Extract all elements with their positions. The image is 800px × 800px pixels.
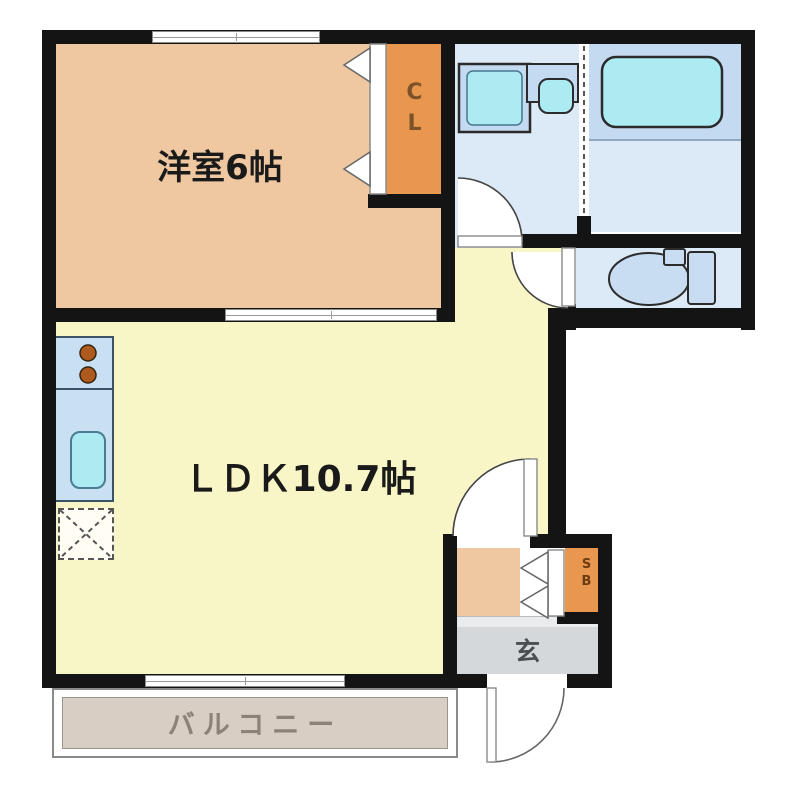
balcony-label: バルコニー [62, 703, 448, 742]
entrance-closet-panel [548, 550, 564, 616]
wall-left [42, 30, 56, 688]
shoe-box-label: SB [570, 557, 594, 607]
room-toilet [576, 248, 741, 308]
kitchen-counter [56, 336, 114, 502]
toilet-door-leaf [562, 248, 575, 306]
doorway-ldk-hall [457, 534, 530, 548]
wall-wet-bottom [522, 234, 755, 248]
wall-right-upper [741, 30, 755, 330]
hallway [455, 248, 562, 308]
wall-western-right [441, 44, 455, 322]
entrance-closet-area [457, 548, 520, 616]
wall-toilet-bottom [548, 308, 755, 328]
wall-entrance-right [598, 534, 612, 688]
wall-toilet-left-top [562, 234, 576, 248]
bath-platform [589, 44, 741, 140]
room-washroom [455, 44, 581, 248]
room-ldk-east [443, 308, 548, 534]
sliding-window-icon [152, 31, 320, 43]
wall-cl-bottom [368, 194, 455, 208]
wall-top [42, 30, 755, 44]
wall-entrance-left [443, 534, 457, 688]
entrance-closet-arrow-icon [521, 586, 548, 618]
sliding-door-balcony-icon [145, 675, 345, 687]
doorway-entrance [487, 674, 567, 688]
genkan-label: 玄 [457, 632, 598, 668]
cl-label: CL [399, 80, 427, 190]
wall-shoebox-bottom [557, 612, 612, 624]
ldk-label: ＬＤＫ10.7帖 [150, 450, 450, 502]
refrigerator-space [58, 508, 114, 560]
sliding-door-western-ldk-icon [225, 309, 437, 321]
wall-divider-stub [577, 216, 591, 234]
wall-ldk-right [548, 308, 566, 548]
floor-plan: 洋室6帖 CL ＬＤＫ10.7帖 玄 SB バルコニー [0, 0, 800, 800]
entrance-closet-arrow-icon [521, 552, 548, 584]
western-room-label: 洋室6帖 [100, 140, 340, 189]
entrance-door-arc-icon [490, 688, 564, 762]
entrance-door-leaf [487, 688, 496, 762]
